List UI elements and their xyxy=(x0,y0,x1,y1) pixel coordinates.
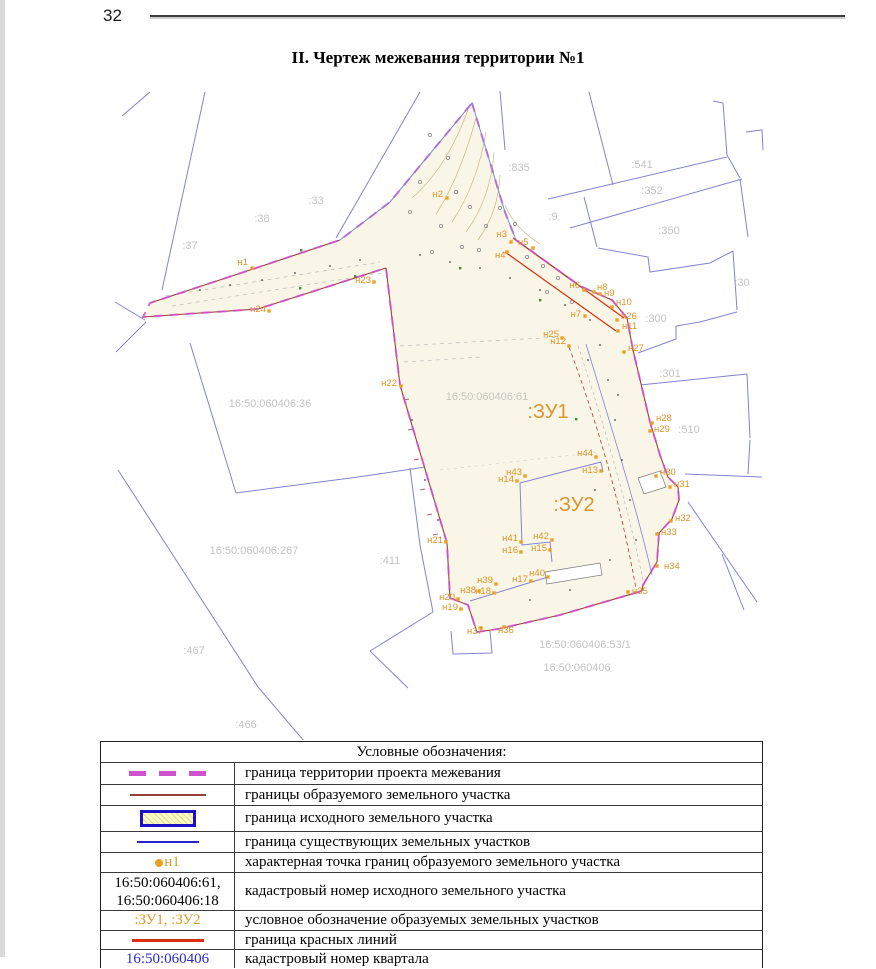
legend-label: граница красных линий xyxy=(235,931,762,950)
legend-row-quarter-number: 16:50:060406 кадастровый номер квартала xyxy=(101,949,762,968)
boundary-point-label: н15 xyxy=(531,543,547,554)
orange-point-symbol: н1 xyxy=(101,853,235,872)
red-line-symbol xyxy=(101,931,235,949)
boundary-point-label: н16 xyxy=(502,545,518,556)
boundary-point-label: н24 xyxy=(250,304,266,315)
boundary-point xyxy=(668,485,671,488)
boundary-point-label: н13 xyxy=(582,465,598,476)
quarter-number-symbol: 16:50:060406 xyxy=(101,950,235,968)
boundary-point xyxy=(267,309,270,312)
boundary-point xyxy=(519,550,522,553)
cadastral-label: 16:50:060406:267 xyxy=(210,545,299,557)
zu-designation-symbol: :ЗУ1, :ЗУ2 xyxy=(101,911,235,930)
boundary-point-label: н41 xyxy=(502,533,518,544)
boundary-point xyxy=(655,564,658,567)
boundary-point-label: н6 xyxy=(569,280,580,291)
boundary-point xyxy=(372,280,375,283)
boundary-point-label: н17 xyxy=(512,574,528,585)
boundary-point-label: н19 xyxy=(442,602,458,613)
boundary-point xyxy=(523,474,526,477)
boundary-point-label: н23 xyxy=(355,275,371,286)
legend-label: кадастровый номер квартала xyxy=(235,950,762,969)
cadastral-label: :510 xyxy=(678,424,699,436)
boundary-point xyxy=(509,240,512,243)
boundary-point-label: н28 xyxy=(656,413,672,424)
boundary-point-label: н31 xyxy=(674,479,690,490)
map-svg: :37:38:33:835:541:352:350:9:30:300:301:5… xyxy=(105,88,770,740)
boundary-point xyxy=(531,246,534,249)
cadastral-label: :411 xyxy=(380,555,401,567)
boundary-point xyxy=(560,336,563,339)
cadastral-label: :9 xyxy=(548,211,557,223)
boundary-point-label: н42 xyxy=(533,531,549,542)
boundary-point xyxy=(655,532,658,535)
boundary-point xyxy=(492,591,495,594)
page-number: 32 xyxy=(103,6,122,26)
boundary-point xyxy=(582,288,585,291)
boundary-point xyxy=(669,519,672,522)
boundary-point-label: н38 xyxy=(460,585,476,596)
legend-row-project-boundary: граница территории проекта межевания xyxy=(101,762,762,784)
cadastral-label: :37 xyxy=(182,240,197,252)
legend-row-existing-parcels: граница существующих земельных участков xyxy=(101,831,762,852)
legend-row-source-cadastral-number: 16:50:060406:61, 16:50:060406:18 кадастр… xyxy=(101,872,762,910)
boundary-point-label: н3 xyxy=(496,229,507,240)
boundary-point xyxy=(654,474,657,477)
cadastral-label: 16:50:060406:61 xyxy=(446,391,529,403)
boundary-point-label: н27 xyxy=(628,343,644,354)
cadastral-label: 16:50:060406:53/1 xyxy=(539,639,631,651)
legend-row-zu-designation: :ЗУ1, :ЗУ2 условное обозначение образуем… xyxy=(101,910,762,930)
boundary-point xyxy=(529,579,532,582)
header-rule xyxy=(150,15,845,17)
boundary-point-label: н26 xyxy=(621,311,637,322)
boundary-point xyxy=(399,384,402,387)
page-title: II. Чертеж межевания территории №1 xyxy=(0,48,876,68)
cadastral-label: :835 xyxy=(508,162,529,174)
survey-map: :37:38:33:835:541:352:350:9:30:300:301:5… xyxy=(105,88,770,740)
cadastral-label: :33 xyxy=(308,195,323,207)
boundary-point-label: н25 xyxy=(543,329,559,340)
boundary-point-label: н9 xyxy=(604,288,615,299)
blue-line-symbol xyxy=(101,832,235,852)
boundary-point xyxy=(456,597,459,600)
legend-label: граница территории проекта межевания xyxy=(235,764,762,783)
magenta-dashed-line-symbol xyxy=(101,763,235,784)
zu-label: :ЗУ2 xyxy=(553,494,594,516)
boundary-point xyxy=(444,540,447,543)
boundary-point xyxy=(616,329,619,332)
boundary-point xyxy=(622,350,625,353)
legend-table: Условные обозначения: граница территории… xyxy=(100,741,763,968)
cadastral-label: :466 xyxy=(235,719,256,731)
legend-row-source-parcel: граница исходного земельного участка xyxy=(101,805,762,831)
legend-row-characteristic-point: н1 характерная точка границ образуемого … xyxy=(101,852,762,872)
boundary-point-label: н21 xyxy=(427,535,443,546)
boundary-point-label: н2 xyxy=(432,189,443,200)
legend-label: граница исходного земельного участка xyxy=(235,809,762,828)
page: { "page": { "number": "32", "title": "II… xyxy=(0,0,876,957)
boundary-point-label: н35 xyxy=(632,586,648,597)
boundary-point xyxy=(548,548,551,551)
legend-label: условное обозначение образуемых земельны… xyxy=(235,911,762,930)
legend-label: границы образуемого земельного участка xyxy=(235,786,762,805)
boundary-point xyxy=(615,318,618,321)
boundary-point-label: н33 xyxy=(661,527,677,538)
hatched-rect-symbol xyxy=(101,806,235,831)
boundary-point xyxy=(598,292,601,295)
legend-header: Условные обозначения: xyxy=(101,742,762,762)
boundary-point-label: н34 xyxy=(664,561,680,572)
boundary-point xyxy=(546,575,549,578)
boundary-point-label: н5 xyxy=(518,237,529,248)
boundary-point-label: н43 xyxy=(506,467,522,478)
boundary-point-label: н7 xyxy=(570,309,581,320)
boundary-point-label: н37 xyxy=(467,626,483,637)
boundary-point-label: н10 xyxy=(616,297,632,308)
legend-label: граница существующих земельных участков xyxy=(235,833,762,852)
zu-label: :ЗУ1 xyxy=(527,401,568,423)
cadastral-label: :38 xyxy=(254,213,269,225)
boundary-point-label: н4 xyxy=(495,250,506,261)
point-dot-icon xyxy=(155,859,163,867)
legend-label: кадастровый номер исходного земельного у… xyxy=(235,882,762,901)
cadastral-label: :350 xyxy=(658,225,679,237)
legend-title: Условные обозначения: xyxy=(356,744,506,761)
boundary-point xyxy=(592,290,595,293)
boundary-point-label: н30 xyxy=(660,467,676,478)
boundary-point xyxy=(599,469,602,472)
boundary-point-label: н1 xyxy=(237,257,248,268)
legend-label: характерная точка границ образуемого зем… xyxy=(235,853,762,872)
cadastral-label: :300 xyxy=(645,313,666,325)
boundary-point xyxy=(626,590,629,593)
cadastral-label: :301 xyxy=(659,368,680,380)
boundary-point xyxy=(594,455,597,458)
boundary-point xyxy=(494,582,497,585)
boundary-point xyxy=(459,607,462,610)
cadastral-label: 16:50:060406 xyxy=(543,662,610,674)
boundary-point-label: н29 xyxy=(654,424,670,435)
boundary-point-label: н40 xyxy=(529,568,545,579)
boundary-point-label: н44 xyxy=(577,448,593,459)
boundary-point-label: н32 xyxy=(675,513,691,524)
cadastral-label: :352 xyxy=(641,185,662,197)
boundary-point-label: н39 xyxy=(477,575,493,586)
boundary-point xyxy=(515,479,518,482)
legend-row-red-lines: граница красных линий xyxy=(101,930,762,949)
cadastral-label: 16:50:060406:36 xyxy=(229,398,312,410)
cadastral-label: :30 xyxy=(734,277,749,289)
legend-row-formed-parcel: границы образуемого земельного участка xyxy=(101,784,762,805)
boundary-point-label: н11 xyxy=(622,321,637,332)
boundary-point xyxy=(505,250,508,253)
boundary-point-label: н36 xyxy=(498,625,514,636)
boundary-point xyxy=(445,196,448,199)
boundary-point-label: н22 xyxy=(381,378,397,389)
cadastral-label: :467 xyxy=(183,645,204,657)
source-cadastral-numbers: 16:50:060406:61, 16:50:060406:18 xyxy=(101,873,235,910)
boundary-point-label: н20 xyxy=(439,592,455,603)
boundary-point xyxy=(583,314,586,317)
boundary-point xyxy=(519,540,522,543)
page-edge-strip xyxy=(0,0,5,957)
boundary-point xyxy=(477,589,480,592)
boundary-point xyxy=(648,429,651,432)
boundary-point xyxy=(567,344,570,347)
boundary-point xyxy=(610,305,613,308)
boundary-point xyxy=(250,266,253,269)
boundary-point xyxy=(550,538,553,541)
cadastral-label: :541 xyxy=(631,159,652,171)
dark-red-line-symbol xyxy=(101,785,235,805)
